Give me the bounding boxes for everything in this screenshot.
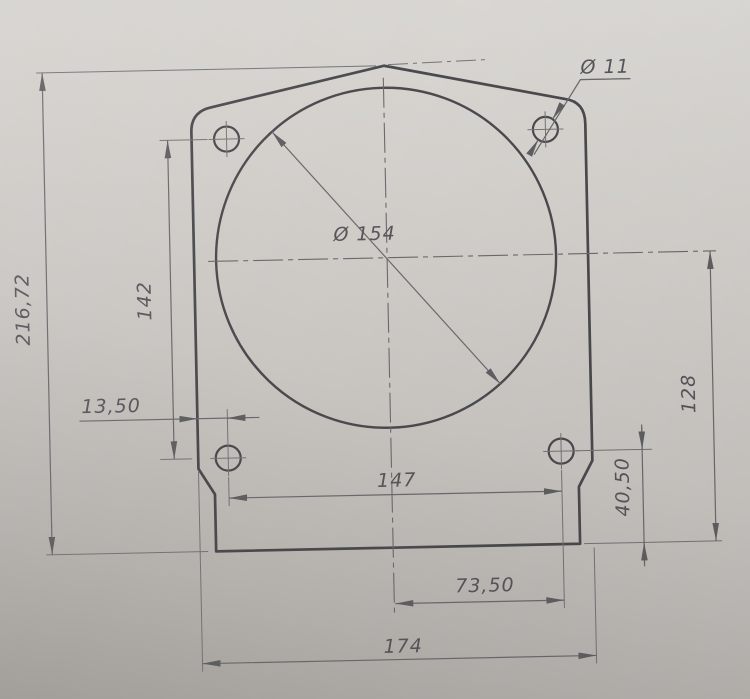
dim-line-hole-vertical-spacing [168,140,175,459]
drawing-rotated-wrap: 216,72 142 13,50 Ø 11 Ø 154 147 73,50 17… [0,0,750,699]
dim-text-center-to-bottom: 128 [678,374,701,414]
vertical-centerline [383,78,394,614]
dim-text-overall-width: 174 [383,635,423,658]
dim-line-overall-height [42,73,52,555]
extension-lines [36,59,724,675]
dimension-lines [42,59,718,667]
dim-line-center-to-hole [395,600,564,604]
dim-line-bore-diameter [272,127,500,388]
dim-text-center-to-hole: 73,50 [455,574,515,597]
dim-text-overall-height: 216,72 [11,273,35,346]
technical-drawing: 216,72 142 13,50 Ø 11 Ø 154 147 73,50 17… [0,0,750,699]
dim-line-bottom-hole-spacing [229,491,562,498]
dim-text-bottom-hole-spacing: 147 [377,469,417,492]
peak-centerline [388,60,486,65]
dim-text-bore-diameter: Ø 154 [332,223,396,246]
dim-text-edge-to-hole: 13,50 [81,395,141,418]
drawing-photo: 216,72 142 13,50 Ø 11 Ø 154 147 73,50 17… [0,0,750,699]
dim-text-hole-to-bottom: 40,50 [611,457,634,517]
dim-text-hole-diameter: Ø 11 [579,56,630,79]
horizontal-centerline [208,251,716,262]
dim-line-center-to-bottom [710,251,716,541]
dim-text-hole-vertical-spacing: 142 [134,281,157,321]
hole-crosshairs [203,111,579,477]
